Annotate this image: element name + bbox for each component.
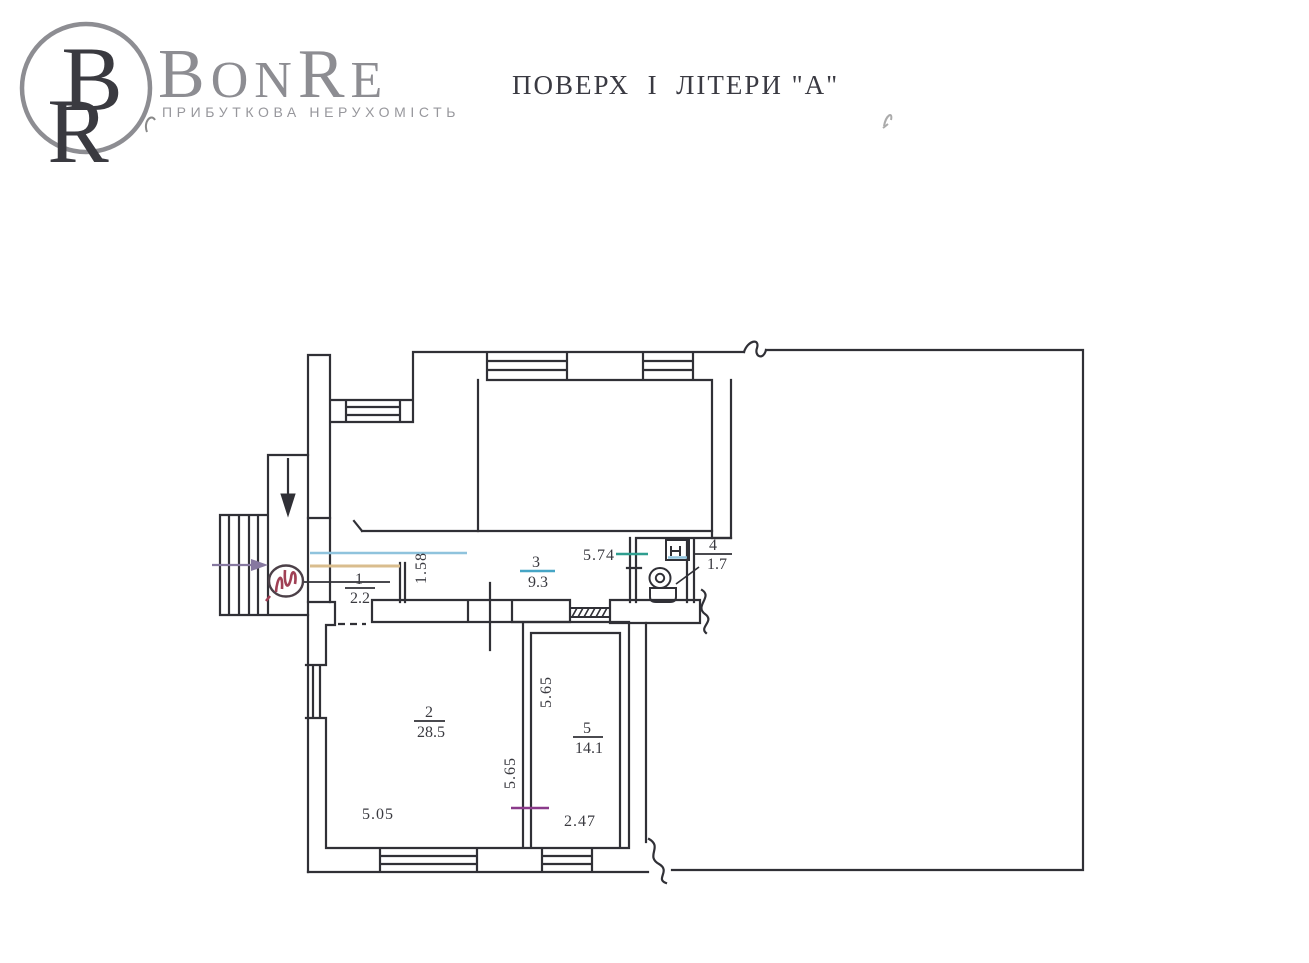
red-pen-mark [266, 566, 303, 602]
outer-walls [308, 350, 1083, 872]
room-area: 2.2 [350, 590, 370, 607]
wall-break-symbol-top [744, 342, 766, 357]
dim-corridor-width: 1.58 [413, 552, 430, 584]
smudge-mark [883, 115, 891, 128]
dim-room5-width: 2.47 [564, 813, 596, 830]
wall-break-symbol-bottom [649, 839, 666, 883]
fixture-box-icon [666, 540, 689, 560]
room-area: 14.1 [575, 740, 603, 757]
room-number: 2 [425, 704, 433, 721]
dim-room2-width: 5.05 [362, 806, 394, 823]
room-5-label: 5 14.1 [573, 720, 603, 757]
walls [220, 342, 1083, 883]
room-area: 28.5 [417, 724, 445, 741]
room-labels: 1 2.2 2 28.5 3 9.3 4 1.7 5 14.1 [345, 537, 732, 757]
wall-break-symbol-mid [701, 590, 708, 633]
room-1-label: 1 2.2 [345, 571, 375, 607]
room-number: 1 [355, 571, 363, 588]
dim-corridor-length: 5.74 [583, 547, 615, 564]
scan-smudges [146, 115, 891, 132]
dim-room5-depth: 5.65 [538, 676, 555, 708]
entry-down-arrow [281, 458, 295, 516]
room-3-label: 3 9.3 [520, 554, 555, 591]
dim-room2-depth: 5.65 [502, 757, 519, 789]
room-area: 9.3 [528, 574, 548, 591]
room-2-label: 2 28.5 [414, 704, 445, 741]
room-number: 4 [709, 537, 717, 554]
room-number: 5 [583, 720, 591, 737]
hatched-wall [570, 608, 610, 617]
room-4-label: 4 1.7 [695, 537, 732, 573]
toilet-icon [650, 568, 677, 602]
room-area: 1.7 [707, 556, 727, 573]
room-number: 3 [532, 554, 540, 571]
smudge-mark [146, 118, 155, 132]
floor-plan: 1 2.2 2 28.5 3 9.3 4 1.7 5 14.1 1.58 5.7… [0, 0, 1309, 963]
